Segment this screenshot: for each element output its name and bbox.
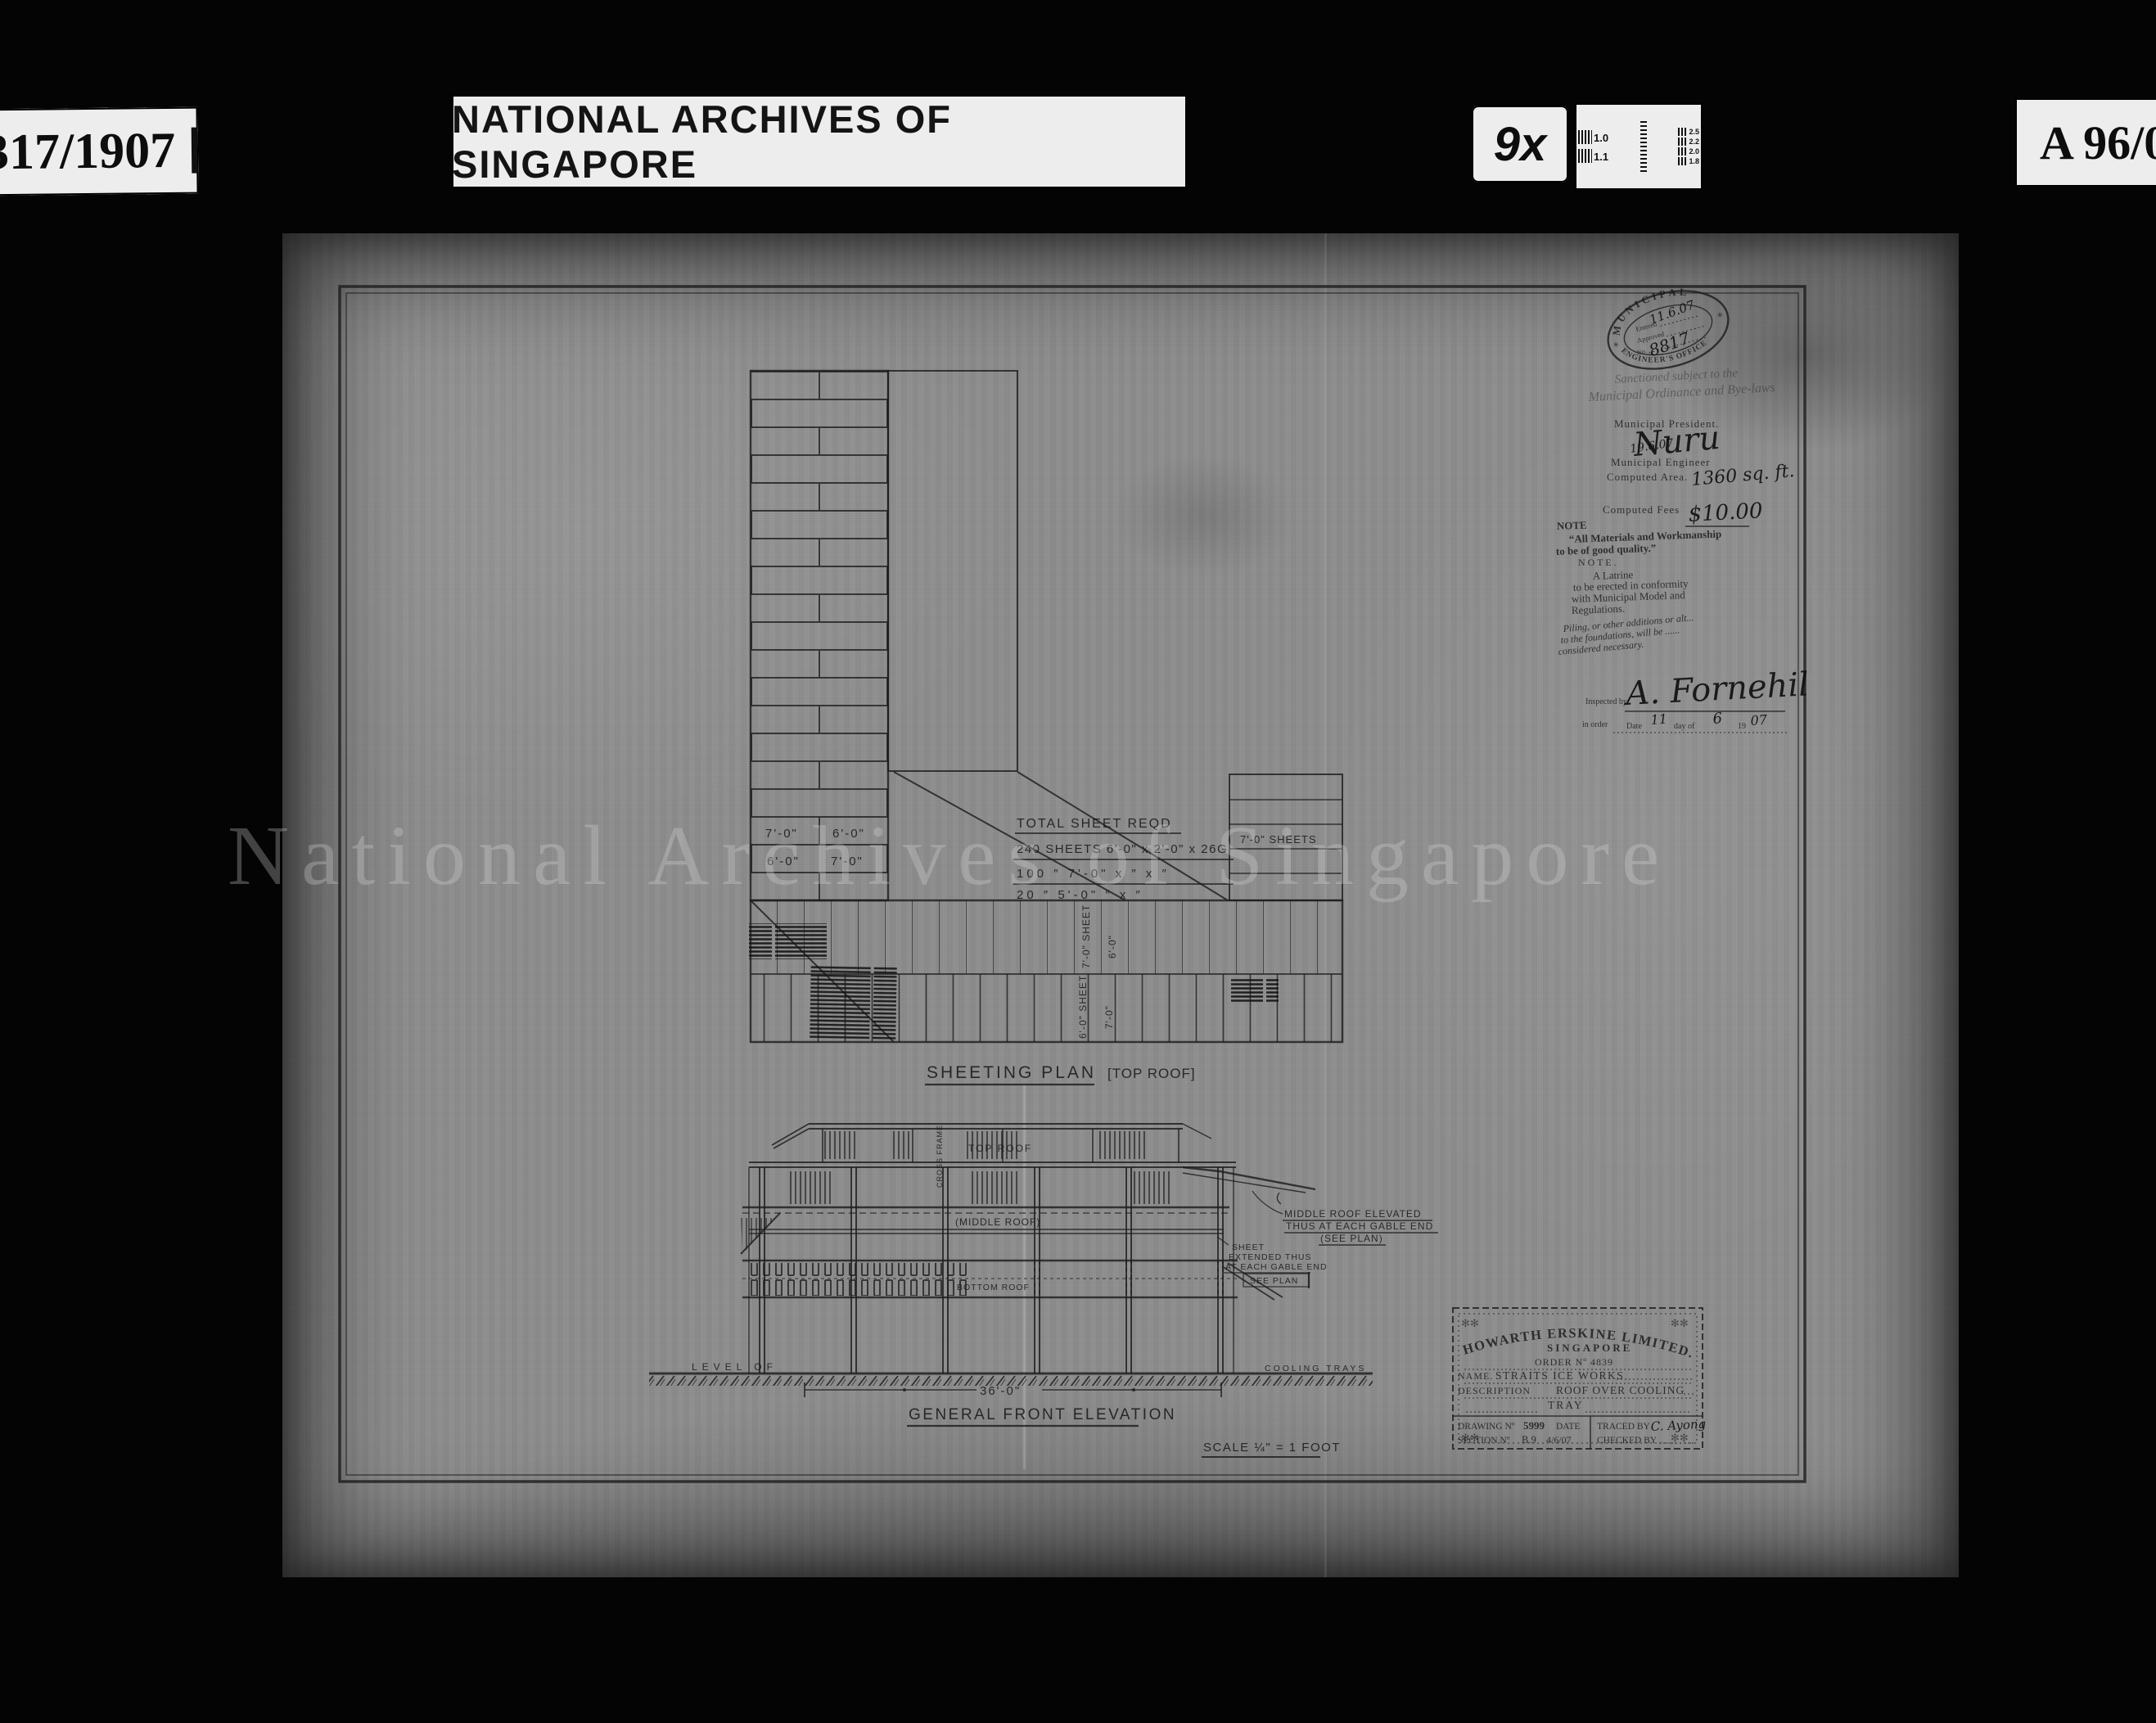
name-value: STRAITS ICE WORKS: [1495, 1369, 1624, 1382]
test-bars-icon: [1678, 128, 1687, 136]
drawing-number-label: DRAWING Nº: [1458, 1422, 1515, 1432]
test-stripe-column-icon: [1640, 121, 1647, 172]
vertical-sheet-label: 6'-0" SHEET: [1077, 975, 1089, 1039]
order-number: ORDER Nº 4839: [1535, 1356, 1613, 1368]
annotation-line: MIDDLE ROOF ELEVATED: [1284, 1208, 1422, 1220]
note1-line: to be of good quality.”: [1556, 542, 1657, 557]
order-month-value: 6: [1712, 710, 1723, 728]
level-of-label: LEVEL OF: [692, 1361, 778, 1373]
test-chart-value: 2.2: [1689, 138, 1699, 146]
computed-fees-label: Computed Fees: [1603, 503, 1680, 516]
archive-title-label: NATIONAL ARCHIVES OF SINGAPORE: [452, 95, 1187, 188]
order-year-value: 07: [1750, 712, 1768, 728]
annotation-line: (SEE PLAN): [1320, 1233, 1383, 1244]
ink-scribble: [1231, 979, 1279, 1004]
annotation-line: AT EACH GABLE END: [1225, 1262, 1328, 1272]
film-reference-text: 317/1907: [0, 121, 176, 181]
description-label: DESCRIPTION: [1458, 1385, 1531, 1396]
note2-line: Regulations.: [1572, 602, 1626, 616]
computed-area-label: Computed Area.: [1607, 471, 1688, 483]
description-value-2: TRAY: [1548, 1399, 1584, 1411]
shelf-reference-label: A 96/0: [2015, 98, 2156, 187]
elevation-dimension: 36'-0": [980, 1384, 1021, 1398]
scale-label: SCALE ¼" = 1 FOOT: [1203, 1441, 1341, 1455]
test-chart-left-column: 1.0 1.1: [1578, 130, 1608, 163]
title-block: ✻✻ ✻✻ ✻✻ ✻✻ HOWARTH ERSKINE LIMITED. SIN…: [1453, 1308, 1707, 1449]
test-chart-value: 1.0: [1594, 132, 1608, 144]
cross-frame-label: CROSS FRAME: [936, 1125, 944, 1188]
order-dayof-label: day of: [1674, 722, 1695, 731]
traced-by-label: TRACED BY: [1597, 1422, 1651, 1432]
middle-roof-label: (MIDDLE ROOF): [955, 1216, 1040, 1228]
film-reference-tick: [192, 128, 198, 174]
computed-fees-value: $10.00: [1688, 498, 1763, 527]
annotation-line: EXTENDED THUS: [1229, 1252, 1312, 1262]
traced-by-signature: C. Ayong: [1650, 1416, 1706, 1434]
note2-title: N O T E .: [1578, 557, 1617, 568]
order-date-label: Date: [1626, 722, 1642, 731]
shelf-reference-text: A 96/0: [2040, 115, 2156, 170]
ink-scribble: [749, 923, 827, 959]
ink-scribble: [810, 965, 897, 1040]
magnification-text: 9x: [1494, 117, 1547, 172]
approval-annotations: Sanctioned subject to the Municipal Ordi…: [1556, 367, 1811, 733]
municipal-stamp: MUNICIPAL ENGINEER'S OFFICE ✳ ✳ Entered …: [1598, 273, 1737, 381]
order-day-value: 11: [1650, 711, 1668, 728]
annotation-line: SHEET: [1232, 1243, 1265, 1252]
magnification-label: 9x: [1472, 106, 1568, 183]
plan-cell-label: 7'-0": [765, 827, 798, 841]
test-chart-right-column: 2.5 2.2 2.0 1.8: [1678, 128, 1699, 165]
plan-cell-label: 7'-0": [831, 855, 864, 868]
engineer-label: Municipal Engineer: [1611, 456, 1711, 468]
stamp-star-icon: ✳: [1716, 310, 1724, 320]
test-bars-icon: [1678, 147, 1687, 156]
sheeting-plan-caption: SHEETING PLAN: [927, 1063, 1096, 1082]
order-prefix: in order: [1582, 720, 1608, 729]
sheeting-plan-caption-suffix: [TOP ROOF]: [1107, 1066, 1196, 1081]
archive-title-text: NATIONAL ARCHIVES OF SINGAPORE: [452, 97, 1187, 187]
sheet-schedule: TOTAL SHEET REQD 240 SHEETS 6'-0" x 2'-0…: [1013, 817, 1234, 902]
drawing-scan: 7'-0" SHEETS 7'-0" 6'-0" 6'-0" 7'-0" 7'-…: [282, 233, 1959, 1577]
schedule-row: 20 ″ 5'-0" ″ x ″: [1017, 888, 1143, 902]
test-bars-icon: [1678, 138, 1687, 146]
test-bars-icon: [1678, 157, 1687, 165]
film-reference-label: 317/1907: [0, 107, 199, 196]
elevation-caption: GENERAL FRONT ELEVATION: [909, 1406, 1176, 1423]
date-label: DATE: [1556, 1422, 1580, 1432]
middle-roof-annotation: MIDDLE ROOF ELEVATED THUS AT EACH GABLE …: [1252, 1191, 1438, 1245]
top-roof-label: TOP ROOF: [968, 1143, 1032, 1154]
vertical-sheet-label: 7'-0" SHEET: [1080, 904, 1092, 968]
right-table-label: 7'-0" SHEETS: [1240, 833, 1317, 846]
vertical-sheet-label: 6'-0": [1107, 935, 1118, 958]
section-number-label: SECTION Nº: [1458, 1436, 1510, 1446]
corner-ornament-icon: ✻✻: [1461, 1317, 1479, 1329]
resolution-test-chart: 1.0 1.1 2.5 2.2 2.0 1.8: [1575, 103, 1703, 190]
checked-by-label: CHECKED BY: [1597, 1436, 1658, 1446]
name-label: NAME.: [1458, 1370, 1493, 1382]
front-elevation-drawing: 36'-0" TOP ROOF (MIDDLE ROOF) BOTTOM ROO…: [649, 1124, 1438, 1457]
bottom-roof-label: BOTTOM ROOF: [957, 1283, 1030, 1292]
note1-title: NOTE: [1557, 519, 1587, 532]
date-value: 4/6/07: [1546, 1434, 1572, 1446]
schedule-row: 240 SHEETS 6'-0" x 2'-0" x 26G: [1017, 842, 1228, 856]
test-chart-value: 1.1: [1594, 151, 1608, 163]
annotation-line: SEE PLAN: [1250, 1276, 1298, 1286]
stamp-star-icon: ✳: [1612, 340, 1620, 350]
plan-cell-label: 6'-0": [832, 827, 865, 841]
vertical-sheet-label: 7'-0": [1103, 1005, 1115, 1029]
order-year-prefix: 19: [1738, 722, 1746, 731]
drawing-number-value: 5999: [1523, 1419, 1545, 1432]
company-city: SINGAPORE: [1547, 1342, 1632, 1354]
test-bars-icon: [1578, 149, 1592, 163]
corner-ornament-icon: ✻✻: [1671, 1317, 1689, 1329]
stamp-number-label: No.: [1636, 347, 1648, 357]
test-chart-value: 1.8: [1689, 157, 1699, 165]
inspected-signature: A. Fornehil: [1622, 665, 1810, 713]
corner-ornament-icon: ✻✻: [1671, 1432, 1689, 1444]
annotation-line: THUS AT EACH GABLE END: [1286, 1220, 1433, 1232]
plan-cell-label: 6'-0": [767, 855, 800, 868]
schedule-title: TOTAL SHEET REQD: [1017, 817, 1172, 831]
section-number-value: B.9: [1522, 1434, 1536, 1446]
test-chart-value: 2.5: [1689, 128, 1699, 136]
sheeting-plan-drawing: 7'-0" SHEETS 7'-0" 6'-0" 6'-0" 7'-0" 7'-…: [749, 371, 1342, 1085]
cooling-trays-label: COOLING TRAYS: [1265, 1364, 1366, 1373]
test-chart-value: 2.0: [1689, 147, 1699, 156]
schedule-row: 100 ″ 7'-0" x ″ x ″: [1017, 867, 1170, 881]
test-bars-icon: [1578, 130, 1592, 144]
inspected-label: Inspected by: [1585, 697, 1627, 706]
description-value: ROOF OVER COOLING: [1556, 1384, 1685, 1396]
